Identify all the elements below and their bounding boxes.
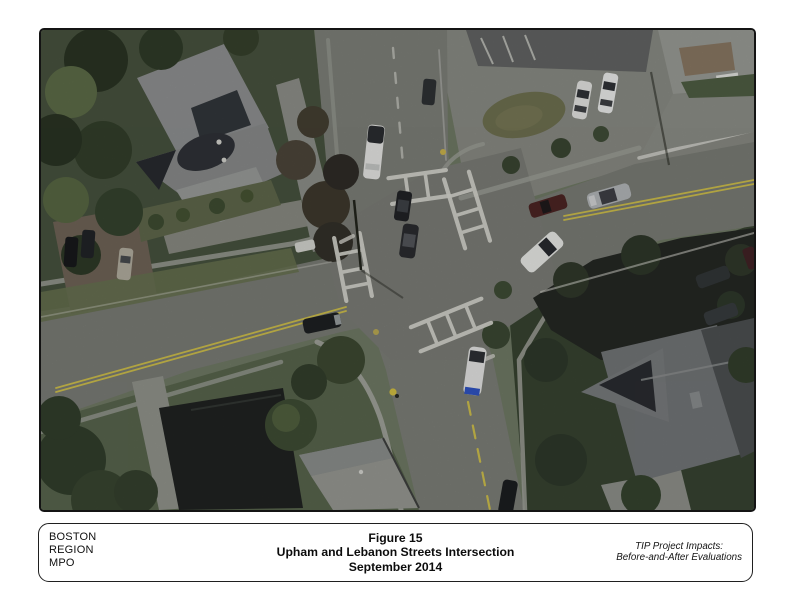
report-note: TIP Project Impacts: Before-and-After Ev… — [616, 541, 742, 565]
aerial-photo — [39, 28, 756, 512]
aerial-photo-canvas — [41, 30, 754, 510]
note-line-2: Before-and-After Evaluations — [616, 553, 742, 565]
details — [41, 30, 754, 510]
footer-box: BOSTON REGION MPO Figure 15 Upham and Le… — [38, 523, 753, 582]
note-line-1: TIP Project Impacts: — [616, 541, 742, 553]
figure-page: BOSTON REGION MPO Figure 15 Upham and Le… — [0, 0, 793, 613]
